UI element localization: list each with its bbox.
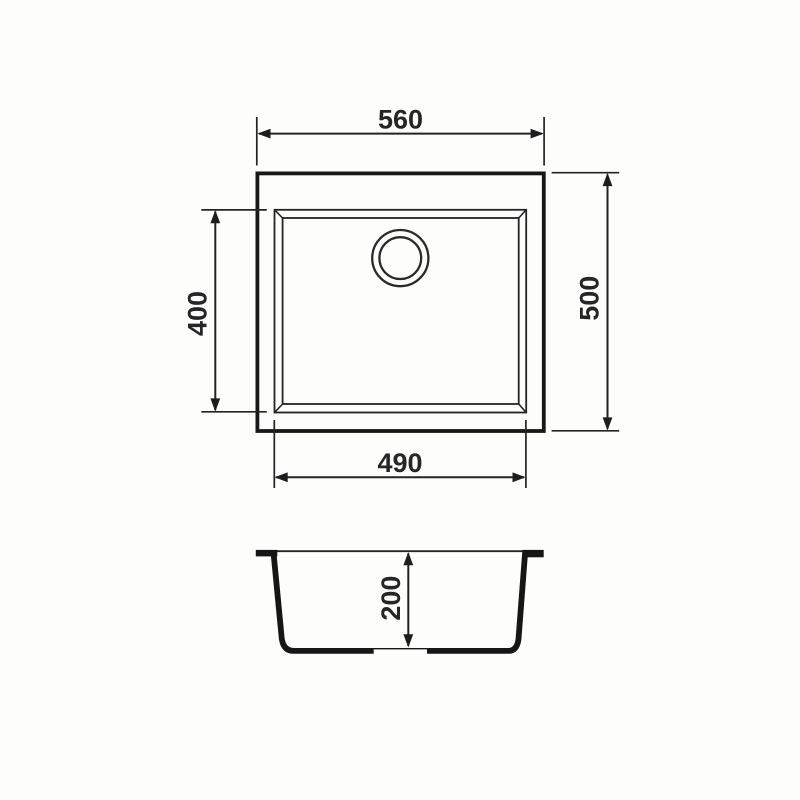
svg-text:400: 400: [183, 291, 213, 336]
svg-text:490: 490: [377, 448, 422, 478]
svg-text:500: 500: [575, 276, 605, 321]
svg-text:560: 560: [378, 105, 423, 135]
svg-text:200: 200: [376, 576, 406, 621]
